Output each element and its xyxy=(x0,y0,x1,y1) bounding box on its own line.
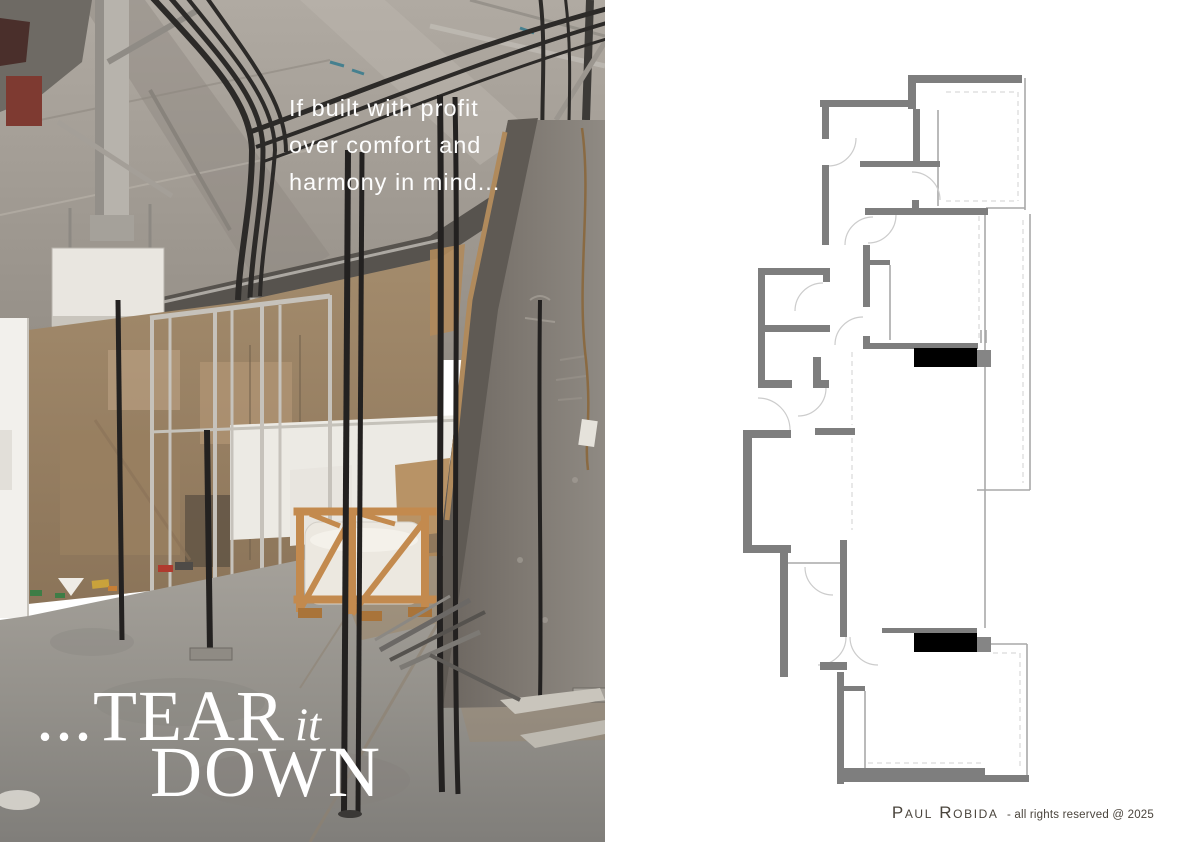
step-rects-group xyxy=(977,350,991,652)
author-name: Paul Robida xyxy=(892,803,999,822)
quote-text: If built with profit over comfort and ha… xyxy=(289,90,589,201)
copyright-footer: Paul Robida - all rights reserved @ 2025 xyxy=(892,803,1154,823)
headline: ...TEARit DOWN xyxy=(36,680,382,808)
floorplan-panel: Paul Robida - all rights reserved @ 2025 xyxy=(605,0,1191,842)
quote-line-2: over comfort and xyxy=(289,127,589,164)
quote-line-1: If built with profit xyxy=(289,90,589,127)
floorplan-drawing xyxy=(740,70,1040,800)
headline-word-down: DOWN xyxy=(150,736,382,808)
construction-photo-panel: If built with profit over comfort and ha… xyxy=(0,0,605,842)
left-white-wall xyxy=(0,318,28,618)
walls-group xyxy=(743,75,1029,784)
quote-line-3: harmony in mind... xyxy=(289,164,589,201)
headline-dots: ... xyxy=(36,676,93,756)
rights-text: - all rights reserved @ 2025 xyxy=(1007,809,1154,821)
black-counters-group xyxy=(914,348,977,652)
